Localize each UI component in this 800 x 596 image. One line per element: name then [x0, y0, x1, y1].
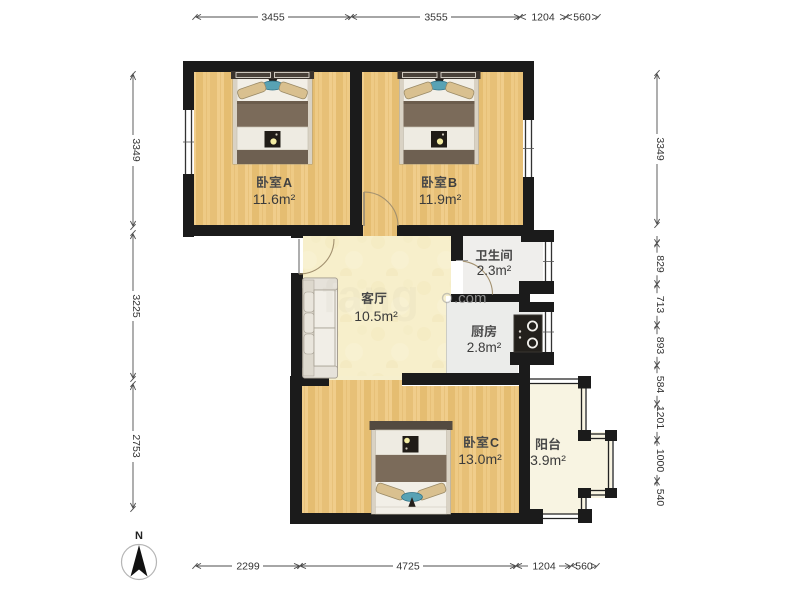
svg-text:560: 560	[573, 12, 591, 24]
svg-text:3455: 3455	[261, 12, 285, 24]
svg-text:584: 584	[654, 376, 666, 394]
svg-text:13.0m²: 13.0m²	[458, 451, 502, 467]
svg-text:893: 893	[654, 337, 666, 355]
svg-text:3349: 3349	[130, 138, 142, 162]
svg-text:C: C	[490, 436, 499, 450]
svg-text:11.9m²: 11.9m²	[419, 191, 462, 207]
svg-text:10.5m²: 10.5m²	[354, 308, 398, 324]
svg-text:3349: 3349	[654, 137, 666, 161]
svg-text:3.9m²: 3.9m²	[530, 452, 566, 468]
svg-text:.com: .com	[454, 290, 487, 307]
svg-text:540: 540	[654, 489, 666, 507]
svg-text:2753: 2753	[130, 434, 142, 458]
svg-text:N: N	[135, 530, 143, 542]
svg-text:4725: 4725	[396, 561, 420, 573]
svg-text:713: 713	[654, 296, 666, 314]
svg-text:3555: 3555	[424, 12, 448, 24]
svg-text:2299: 2299	[236, 561, 260, 573]
svg-text:3225: 3225	[130, 294, 142, 318]
svg-text:2.8m²: 2.8m²	[467, 340, 502, 355]
svg-text:829: 829	[654, 255, 666, 273]
svg-text:1204: 1204	[531, 12, 555, 24]
svg-text:1201: 1201	[654, 406, 666, 430]
svg-text:2.3m²: 2.3m²	[477, 263, 512, 278]
svg-text:1000: 1000	[654, 449, 666, 473]
svg-text:A: A	[283, 176, 292, 190]
svg-text:11.6m²: 11.6m²	[253, 191, 296, 207]
svg-text:560: 560	[575, 561, 593, 573]
svg-text:1204: 1204	[532, 561, 556, 573]
svg-text:B: B	[448, 176, 457, 190]
